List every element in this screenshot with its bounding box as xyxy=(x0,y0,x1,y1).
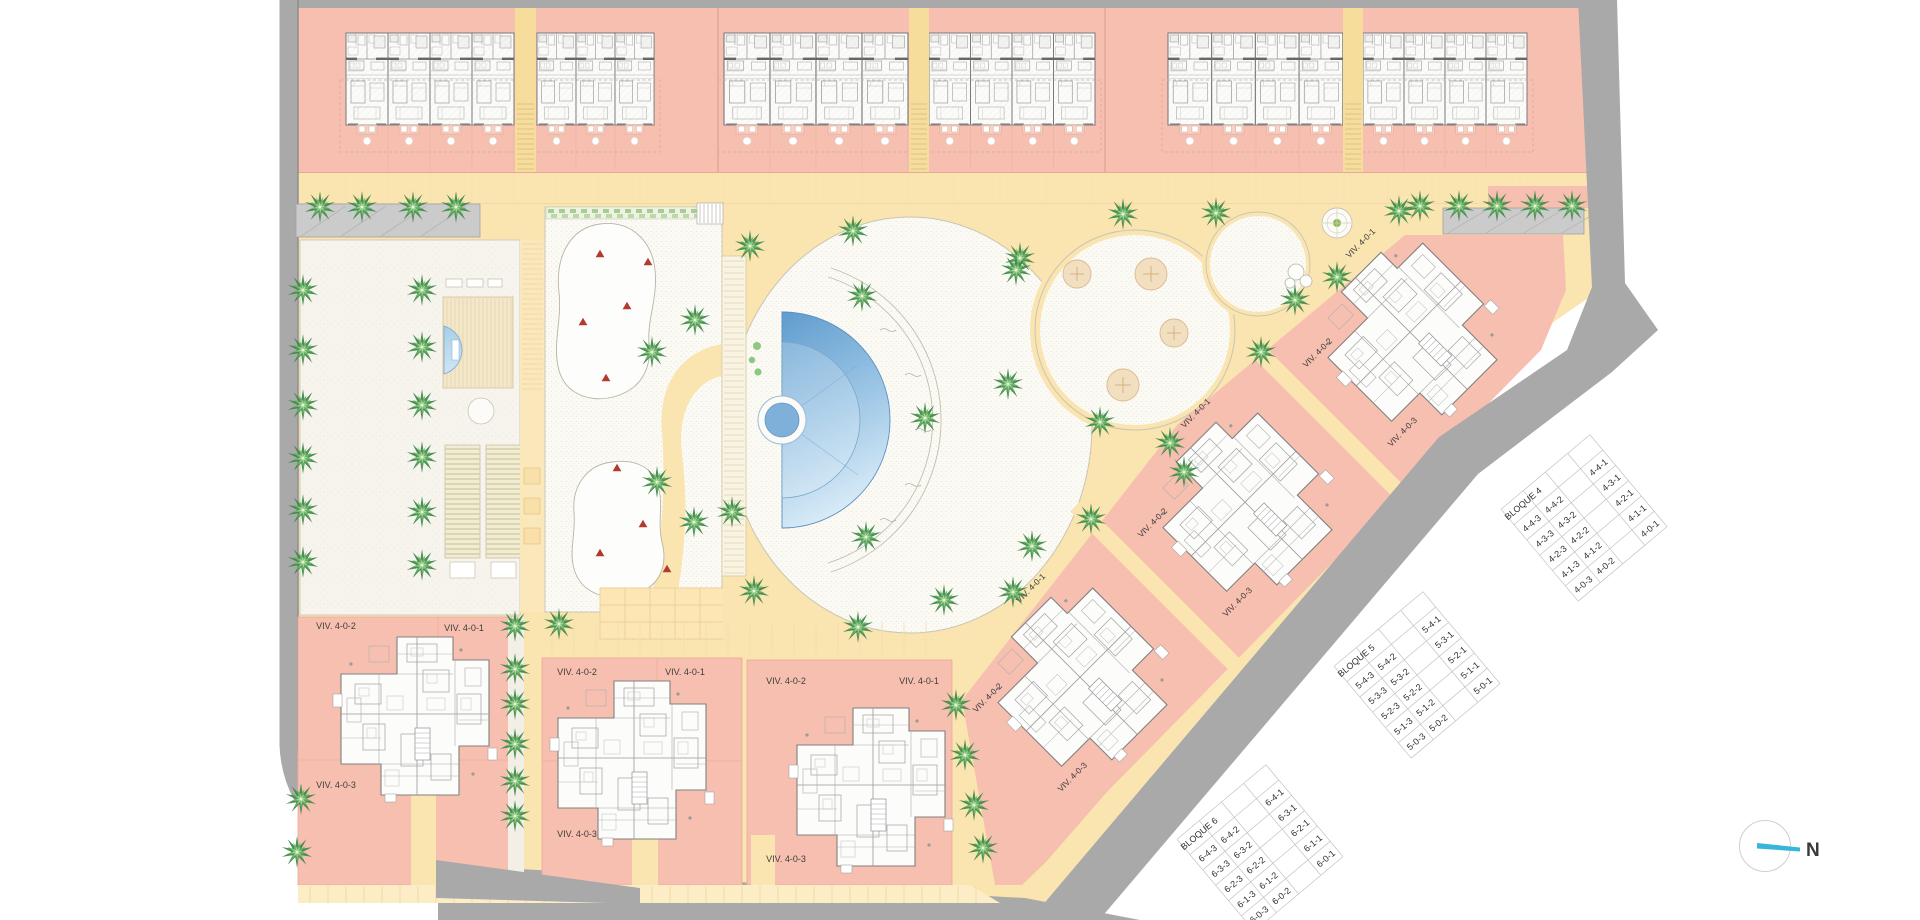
svg-text:N: N xyxy=(1806,840,1820,861)
svg-text:VIV. 4-0-2: VIV. 4-0-2 xyxy=(766,676,806,686)
svg-text:VIV. 4-0-1: VIV. 4-0-1 xyxy=(899,676,939,686)
svg-text:VIV. 4-0-2: VIV. 4-0-2 xyxy=(316,621,356,631)
svg-text:VIV. 4-0-1: VIV. 4-0-1 xyxy=(444,623,484,633)
svg-text:VIV. 4-0-3: VIV. 4-0-3 xyxy=(766,854,806,864)
svg-text:VIV. 4-0-1: VIV. 4-0-1 xyxy=(665,667,705,677)
svg-text:VIV. 4-0-3: VIV. 4-0-3 xyxy=(557,829,597,839)
svg-text:VIV. 4-0-3: VIV. 4-0-3 xyxy=(316,780,356,790)
svg-text:VIV. 4-0-2: VIV. 4-0-2 xyxy=(557,667,597,677)
